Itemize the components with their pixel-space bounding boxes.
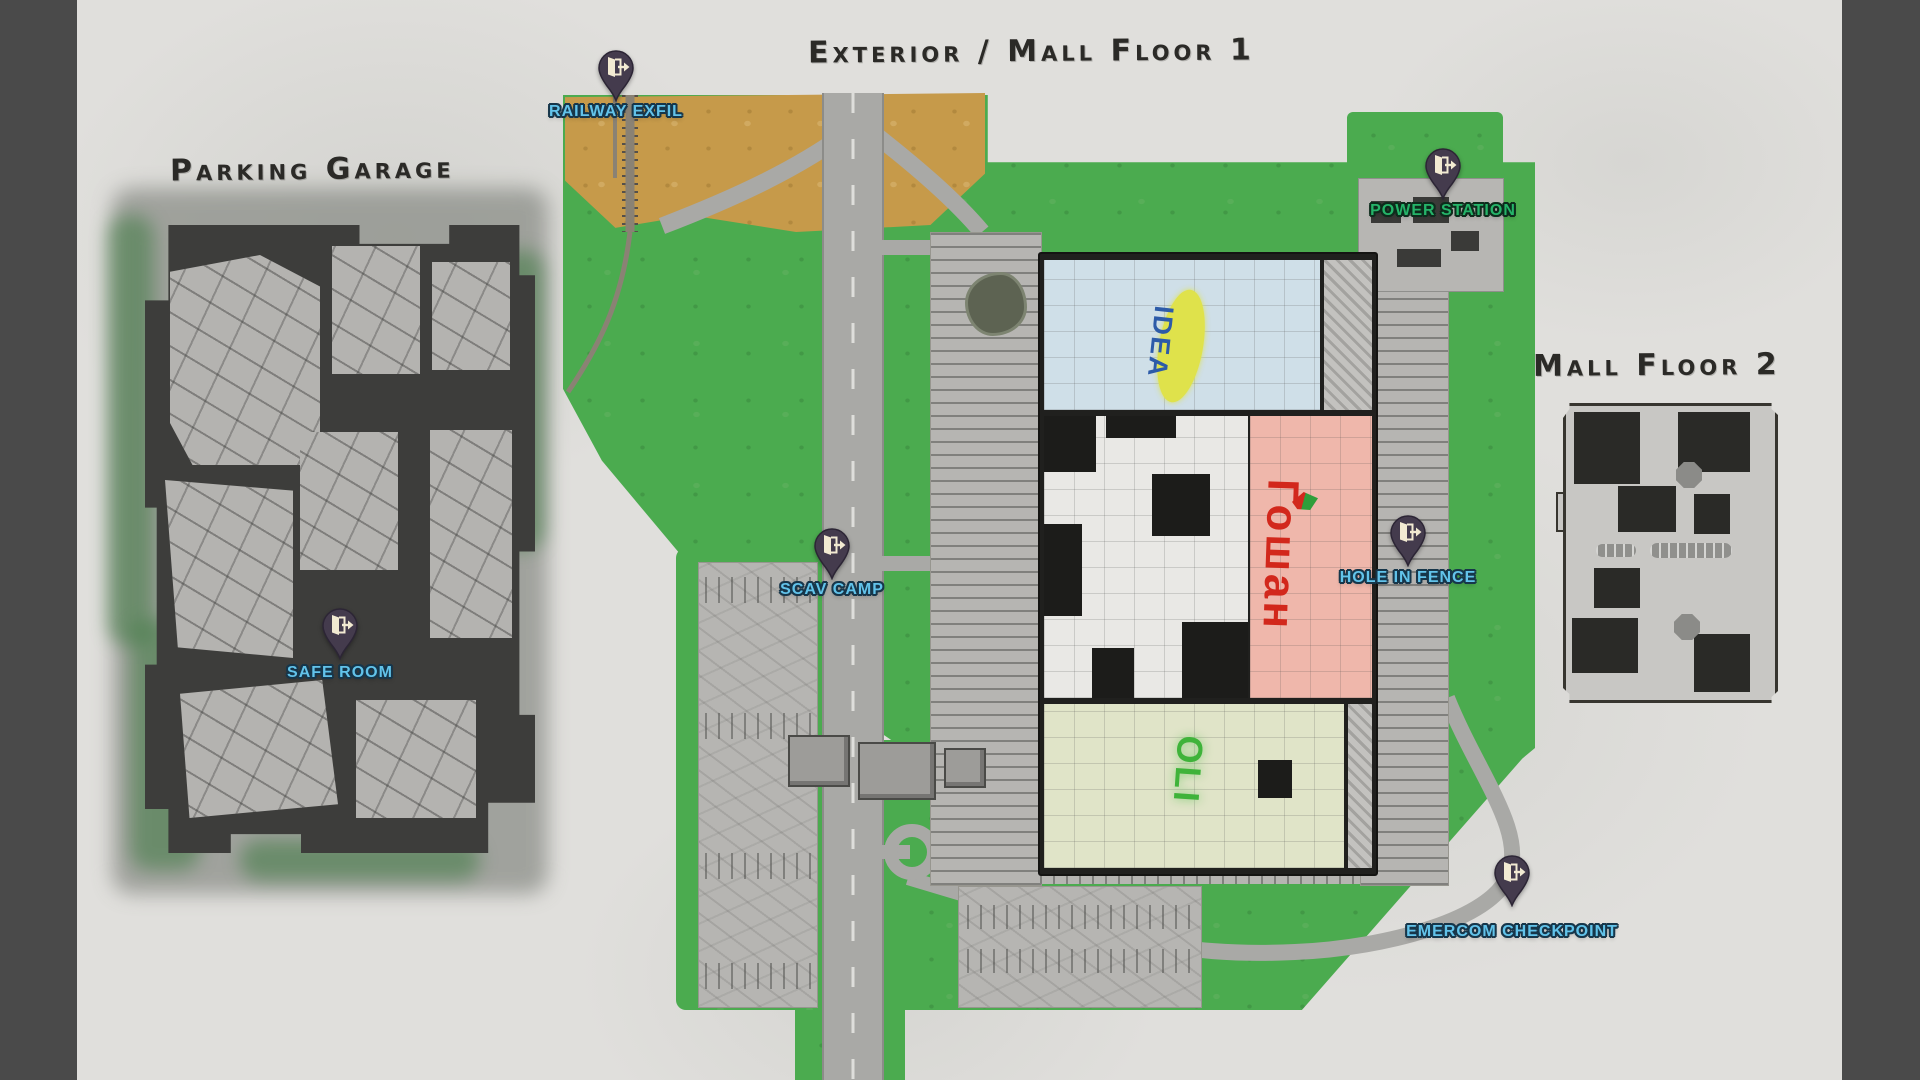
parking-stalls-row [705,853,811,879]
extraction-pin-door-exit-icon [814,528,850,580]
mall-dark-block [1044,524,1082,616]
floor2-atrium-octagon [1676,462,1702,488]
road-connector [880,556,932,571]
floor2-store-unit [1574,412,1640,484]
extraction-pin-door-exit-icon [598,50,634,102]
extraction-pin-door-exit-icon [1494,855,1530,907]
mall-dark-block [1258,760,1292,798]
mall-dark-block [1106,416,1176,438]
extraction-pin-door-exit-icon [1390,515,1426,567]
floor2-store-unit [1618,486,1676,532]
scav-camp-structure [788,735,850,787]
interchange-map-screenshot: Parking Garage Exterior / Mall Floor 1 [0,0,1920,1080]
oli-store-label: OLI [1165,734,1212,806]
floor2-escalator [1650,543,1732,558]
mall-floor-2-title: Mall Floor 2 [1533,347,1781,384]
extraction-pin-door-exit-icon [322,608,358,660]
road-connector [880,240,932,255]
floor2-store-unit [1572,618,1638,673]
floor2-store-unit [1694,494,1730,534]
road-branch-right [872,132,982,232]
mall-dark-block [1092,648,1134,698]
parking-stalls-row [967,905,1193,929]
parking-lot-south [958,886,1202,1008]
floor2-atrium-octagon [1674,614,1700,640]
parking-stalls-row [705,963,811,989]
marker-label: POWER STATION [1370,202,1516,220]
power-station-building [1451,231,1479,251]
mall-floor-2-map [1563,403,1778,703]
mall-parking-deck-hatch [1324,260,1372,410]
mall-parking-deck-hatch [1348,704,1372,868]
pond [965,272,1027,336]
scav-camp-structure [944,748,986,788]
marker-label: EMERCOM CHECKPOINT [1406,923,1618,941]
marker-label: HOLE IN FENCE [1340,569,1477,587]
scav-camp-structure [858,742,936,800]
mall-dark-block [1152,474,1210,536]
floor2-store-unit [1594,568,1640,608]
extraction-pin-door-exit-icon [1425,148,1461,200]
marker-label: SCAV CAMP [780,581,884,599]
railway-curve [568,232,630,392]
floor2-store-unit [1694,634,1750,692]
mall-center-area [1044,416,1248,698]
parking-stalls-row [967,949,1193,973]
mall-building: IDEA Гошан OLI [1038,252,1378,876]
marker-label: RAILWAY EXFIL [549,103,683,121]
floor2-escalator [1596,544,1636,557]
mall-dark-block [1182,622,1248,698]
marker-label: SAFE ROOM [287,664,393,682]
power-station-building [1397,249,1441,267]
mall-dark-block [1044,416,1096,472]
